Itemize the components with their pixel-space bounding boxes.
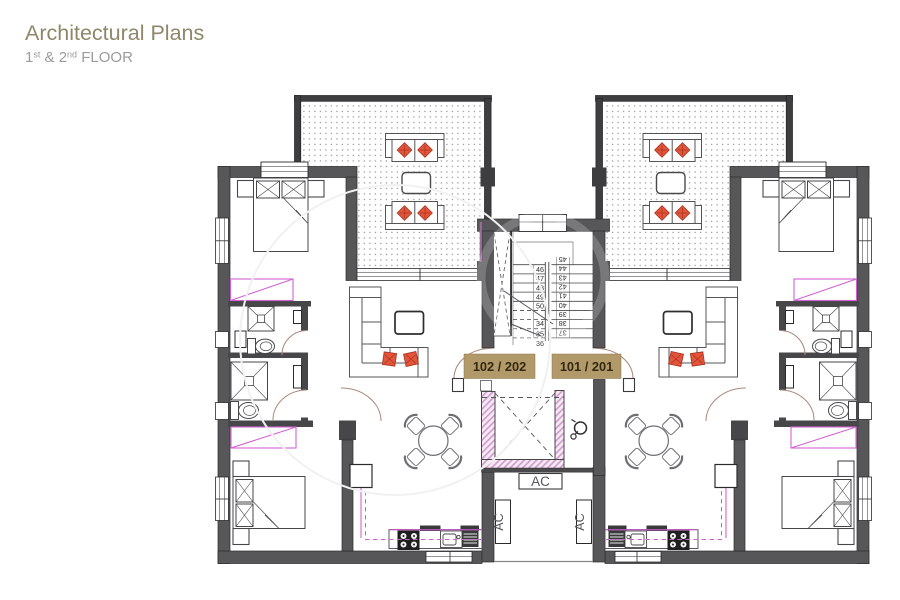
svg-text:39: 39 [559,310,567,319]
svg-text:34: 34 [536,319,544,328]
svg-text:1st & 2nd FLOOR: 1st & 2nd FLOOR [25,49,133,66]
svg-text:102 / 202: 102 / 202 [473,359,526,374]
svg-text:42: 42 [559,283,567,292]
svg-text:Architectural Plans: Architectural Plans [25,21,204,45]
svg-text:43: 43 [559,273,567,282]
svg-text:40: 40 [559,301,567,310]
svg-text:44: 44 [559,264,567,273]
svg-text:45: 45 [559,255,567,264]
svg-text:AC: AC [573,513,587,530]
svg-text:AC: AC [492,513,506,530]
svg-text:38: 38 [559,319,567,328]
svg-text:46: 46 [536,265,544,274]
svg-text:41: 41 [559,292,567,301]
svg-text:50: 50 [536,302,544,311]
svg-text:101 / 201: 101 / 201 [560,359,613,374]
svg-text:AC: AC [531,474,550,489]
